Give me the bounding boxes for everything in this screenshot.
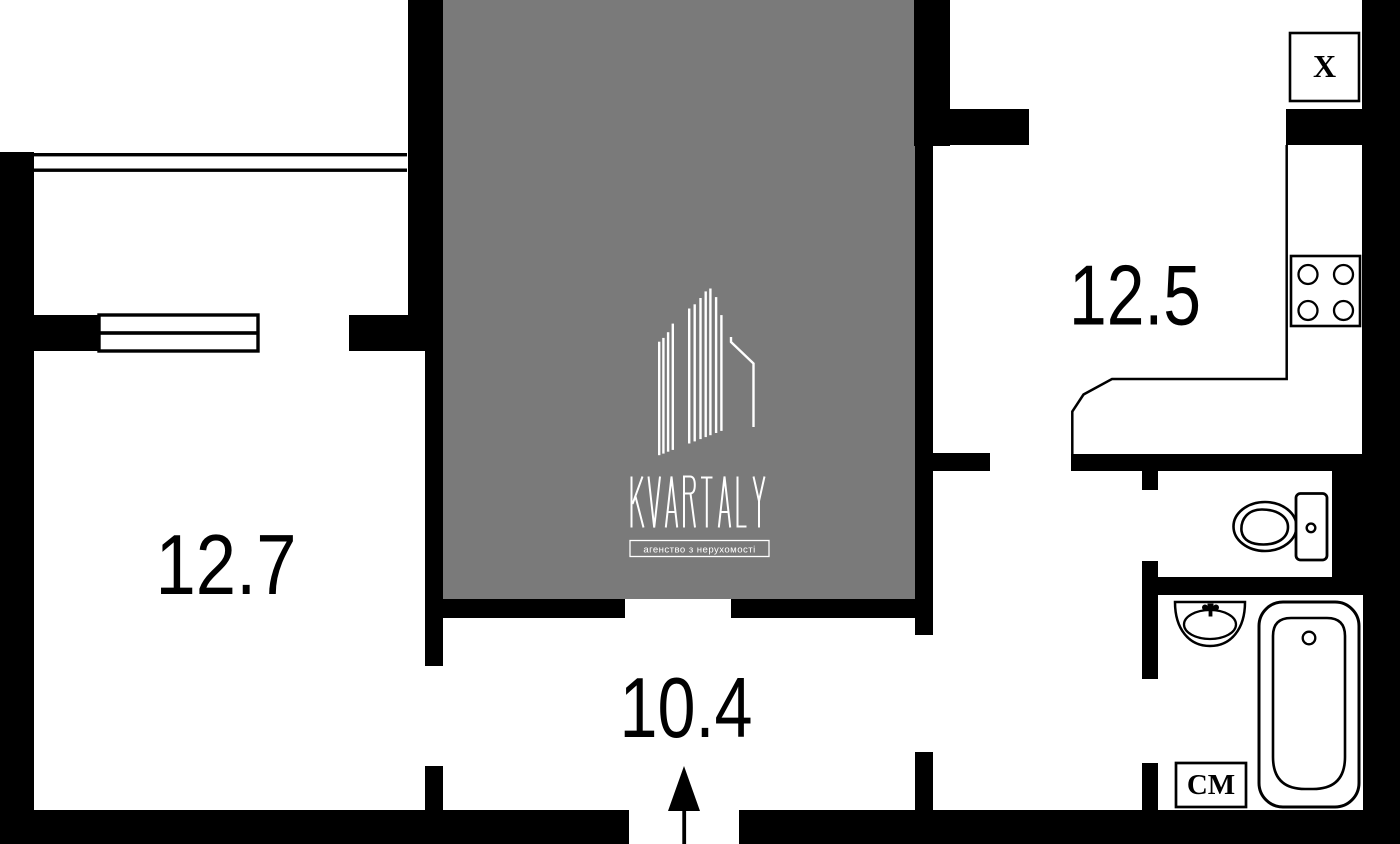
- svg-text:12.5: 12.5: [1069, 249, 1201, 344]
- svg-text:СМ: СМ: [1187, 769, 1235, 801]
- svg-text:агенство з нерухомості: агенство з нерухомості: [643, 545, 755, 556]
- svg-text:12.7: 12.7: [156, 518, 297, 613]
- svg-text:10.4: 10.4: [620, 661, 753, 756]
- svg-text:X: X: [1313, 48, 1336, 84]
